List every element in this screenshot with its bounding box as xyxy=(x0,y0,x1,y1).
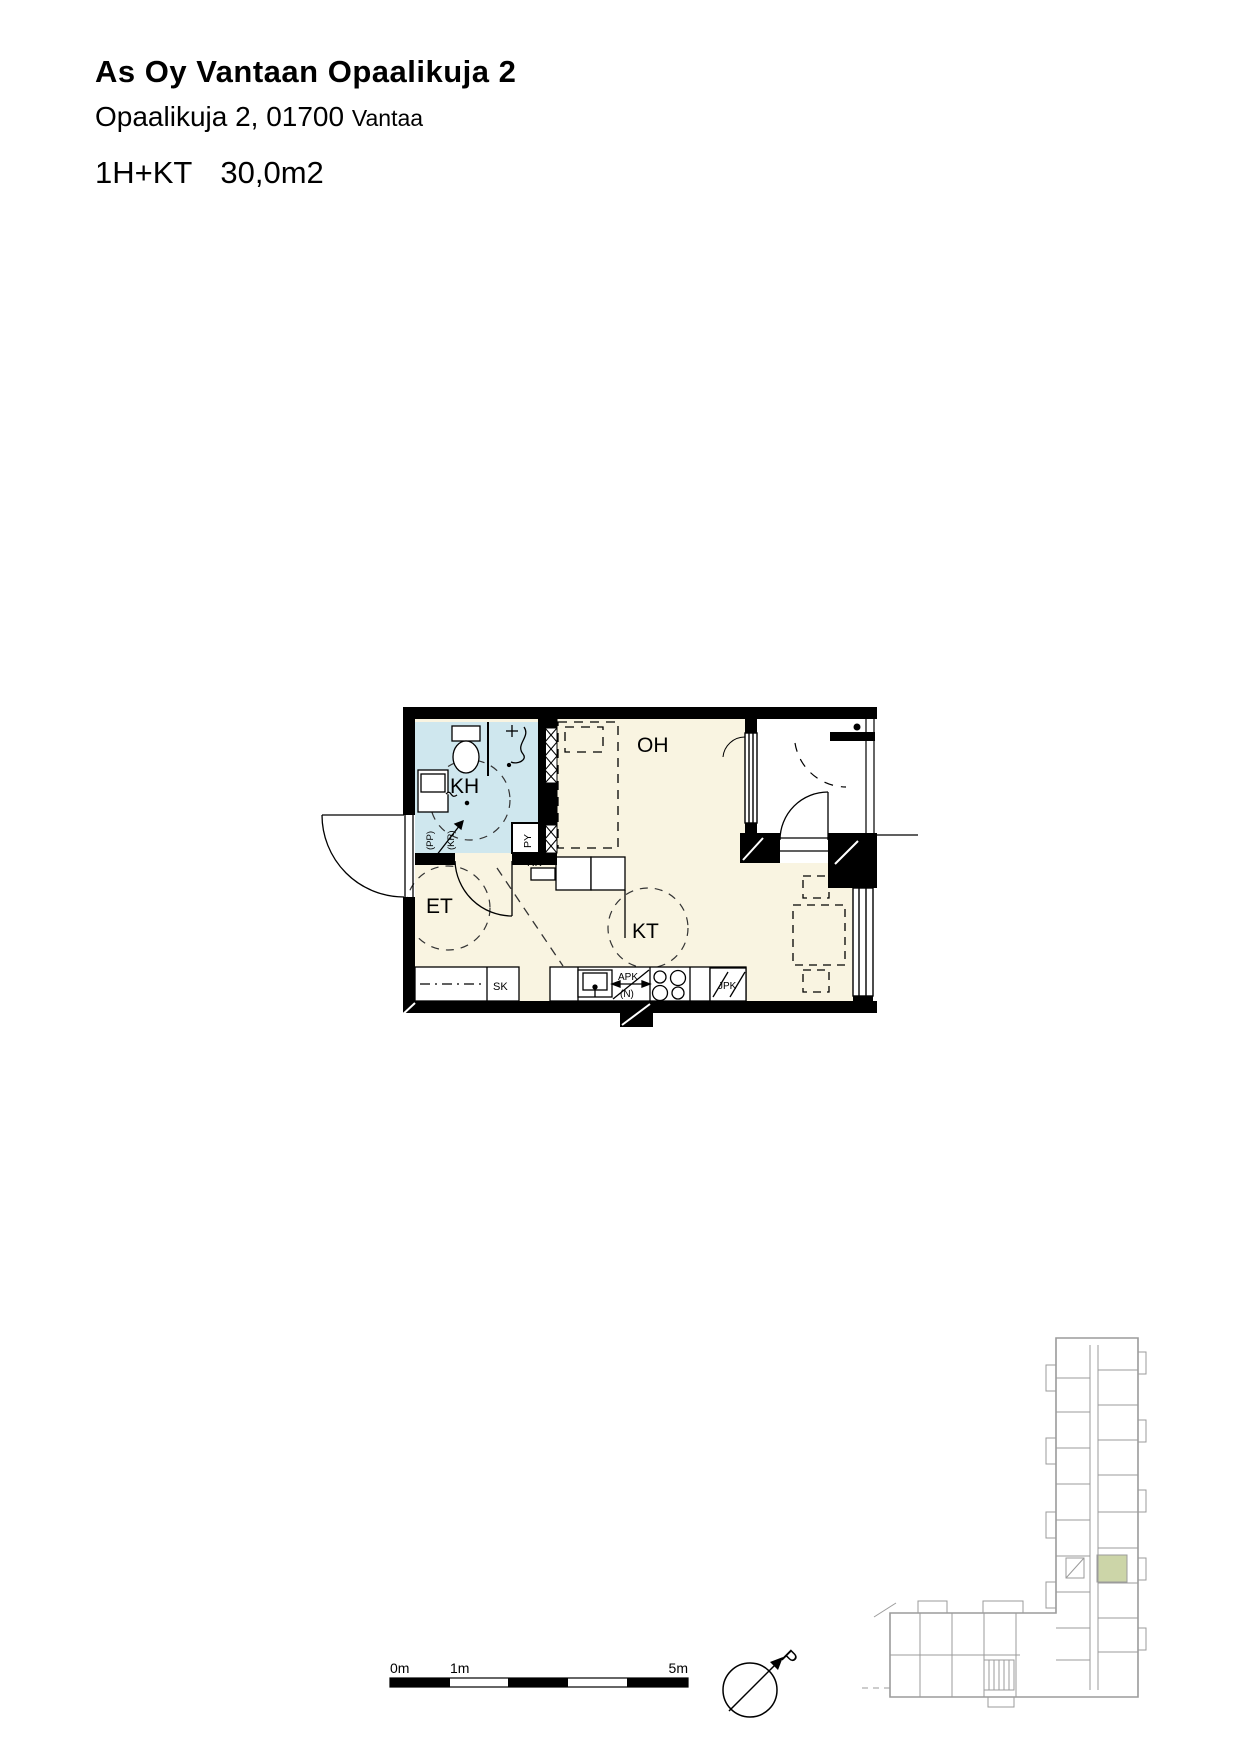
compass: P xyxy=(723,1646,801,1717)
scale-label-5m: 5m xyxy=(669,1660,688,1676)
label-py: PY xyxy=(522,834,534,848)
floor-drain xyxy=(465,801,468,804)
lobby-door xyxy=(780,792,828,851)
compass-north-label: P xyxy=(776,1646,801,1671)
service-shaft xyxy=(545,719,557,853)
neighbor-door xyxy=(795,724,875,788)
label-kr: (KR) xyxy=(446,830,457,850)
label-rk: RK xyxy=(527,857,542,869)
label-bathroom: KH xyxy=(450,775,479,798)
kitchen-window xyxy=(853,888,873,996)
label-apk: APK xyxy=(618,972,638,983)
label-living-room: OH xyxy=(637,734,669,757)
site-plan-stair xyxy=(984,1660,1014,1707)
label-jpk: JPK xyxy=(718,981,737,992)
scale-label-1m: 1m xyxy=(450,1660,469,1676)
site-plan xyxy=(862,1338,1146,1707)
label-entry: ET xyxy=(426,895,453,918)
scale-label-0m: 0m xyxy=(390,1660,409,1676)
floorplan-page: As Oy Vantaan Opaalikuja 2 Opaalikuja 2,… xyxy=(0,0,1240,1754)
front-door xyxy=(322,815,413,897)
label-kitchen: KT xyxy=(632,920,659,943)
site-plan-highlighted-unit xyxy=(1097,1555,1127,1582)
label-apk-sub: (N) xyxy=(620,989,634,1000)
label-pp: (PP) xyxy=(425,831,436,850)
label-sk: SK xyxy=(493,981,508,993)
toilet-symbol xyxy=(452,726,480,773)
floor-plan: OH KH ET KT SK RK PY (PP) (KR) APK (N) J… xyxy=(322,707,918,1027)
drawing-canvas: OH KH ET KT SK RK PY (PP) (KR) APK (N) J… xyxy=(0,0,1240,1754)
sink-symbol xyxy=(578,970,612,997)
electrical-panel-box xyxy=(531,868,555,880)
scale-bar: 0m 1m 5m xyxy=(390,1660,688,1687)
wardrobe-symbol xyxy=(556,857,625,890)
